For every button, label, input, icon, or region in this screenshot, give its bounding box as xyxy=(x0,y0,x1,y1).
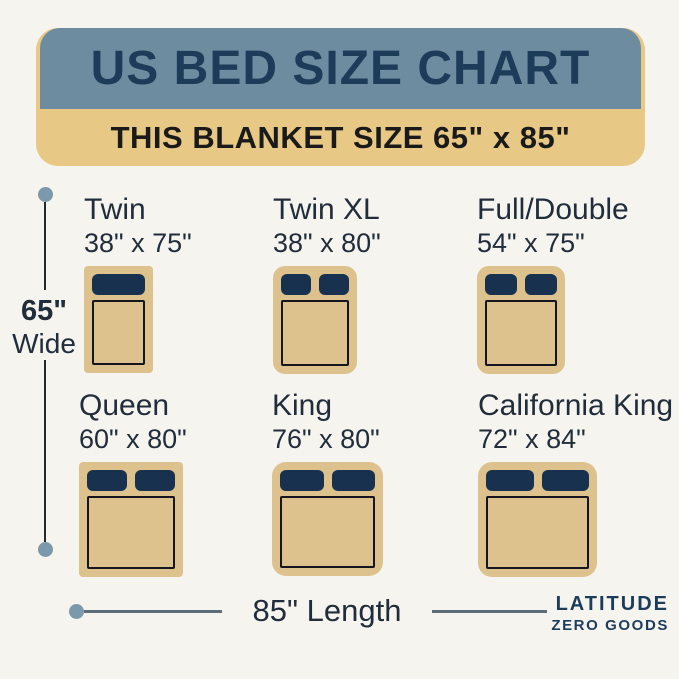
bed-cell-queen: Queen 60" x 80" xyxy=(79,389,187,577)
pillow-row xyxy=(281,274,349,295)
pillow xyxy=(485,274,517,295)
bed-name: Full/Double xyxy=(477,193,629,227)
bed-cell-full-double: Full/Double 54" x 75" xyxy=(477,193,629,374)
width-dimension-line-lower xyxy=(44,360,46,542)
pillow xyxy=(542,470,590,491)
pillow xyxy=(486,470,534,491)
brand-tagline: ZERO GOODS xyxy=(551,617,669,634)
pillow-row xyxy=(92,274,145,295)
dimension-dot-bottom xyxy=(38,542,53,557)
bed-size: 72" x 84" xyxy=(478,424,673,454)
bed-blanket xyxy=(272,462,383,576)
bed-blanket xyxy=(273,266,357,374)
bed-size: 38" x 80" xyxy=(273,228,381,258)
width-value: 65" xyxy=(2,295,86,328)
bed-size: 54" x 75" xyxy=(477,228,629,258)
bed-name: Twin XL xyxy=(273,193,381,227)
brand-name: LATITUDE xyxy=(551,593,669,616)
bed-name: King xyxy=(272,389,383,423)
chart-title-bar: US BED SIZE CHART xyxy=(40,28,641,109)
mattress xyxy=(92,300,145,365)
bed-cell-twin-xl: Twin XL 38" x 80" xyxy=(273,193,381,374)
bed-size: 38" x 75" xyxy=(84,228,192,258)
bed-cell-california-king: California King 72" x 84" xyxy=(478,389,673,577)
pillow xyxy=(135,470,175,491)
blanket-size-subtitle: THIS BLANKET SIZE 65" x 85" xyxy=(36,109,645,166)
pillow-row xyxy=(87,470,175,491)
header-banner: US BED SIZE CHART THIS BLANKET SIZE 65" … xyxy=(36,28,645,166)
pillow-row xyxy=(486,470,589,491)
brand-logo: LATITUDE ZERO GOODS xyxy=(551,593,669,634)
width-dimension-line-upper xyxy=(44,202,46,290)
bed-name: Queen xyxy=(79,389,187,423)
mattress xyxy=(486,496,589,569)
pillow xyxy=(332,470,376,491)
bed-cell-king: King 76" x 80" xyxy=(272,389,383,576)
pillow xyxy=(92,274,145,295)
width-word: Wide xyxy=(2,328,86,359)
bed-name: California King xyxy=(478,389,673,423)
bed-blanket xyxy=(478,462,597,577)
pillow-row xyxy=(485,274,557,295)
bed-size: 60" x 80" xyxy=(79,424,187,454)
length-dimension-line-right xyxy=(432,610,547,613)
mattress xyxy=(281,300,349,366)
bed-blanket xyxy=(477,266,565,374)
blanket-size-bar: THIS BLANKET SIZE 65" x 85" xyxy=(36,109,645,166)
width-dimension-label: 65" Wide xyxy=(2,295,86,359)
pillow xyxy=(87,470,127,491)
length-dimension-label: 85" Length xyxy=(222,594,432,628)
pillow xyxy=(281,274,311,295)
bed-cell-twin: Twin 38" x 75" xyxy=(84,193,192,373)
mattress xyxy=(485,300,557,366)
bed-blanket xyxy=(84,266,153,373)
bed-name: Twin xyxy=(84,193,192,227)
pillow xyxy=(280,470,324,491)
mattress xyxy=(280,496,375,568)
mattress xyxy=(87,496,175,569)
pillow xyxy=(525,274,557,295)
bed-size-chart: US BED SIZE CHART THIS BLANKET SIZE 65" … xyxy=(0,0,679,679)
length-dimension-line-left xyxy=(84,610,222,613)
chart-title: US BED SIZE CHART xyxy=(40,28,641,109)
dimension-dot-top xyxy=(38,187,53,202)
bed-blanket xyxy=(79,462,183,577)
dimension-dot-left xyxy=(69,604,84,619)
pillow xyxy=(319,274,349,295)
bed-size: 76" x 80" xyxy=(272,424,383,454)
pillow-row xyxy=(280,470,375,491)
